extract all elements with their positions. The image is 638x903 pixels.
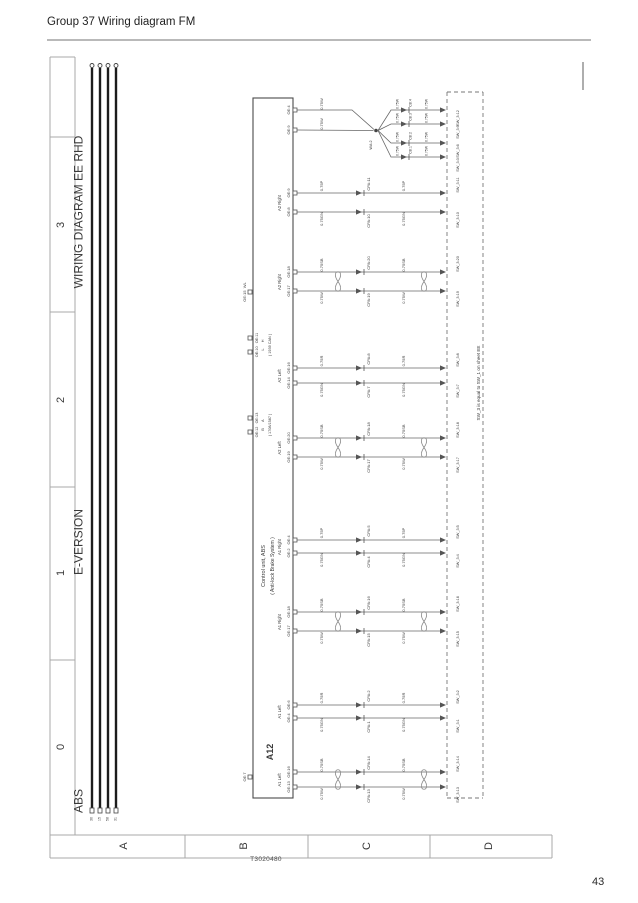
bus-terminals — [90, 808, 118, 813]
manual-page: Group 37 Wiring diagram FM 3210ABCDWIRIN… — [0, 0, 638, 903]
wiring-diagram-linework — [0, 0, 638, 903]
frame — [50, 57, 583, 858]
abs-control-unit-box — [253, 98, 293, 798]
bus-bars — [90, 64, 118, 814]
figure-id: T3020480 — [238, 856, 294, 863]
harness-boundary — [447, 92, 483, 798]
page-number: 43 — [592, 876, 604, 888]
